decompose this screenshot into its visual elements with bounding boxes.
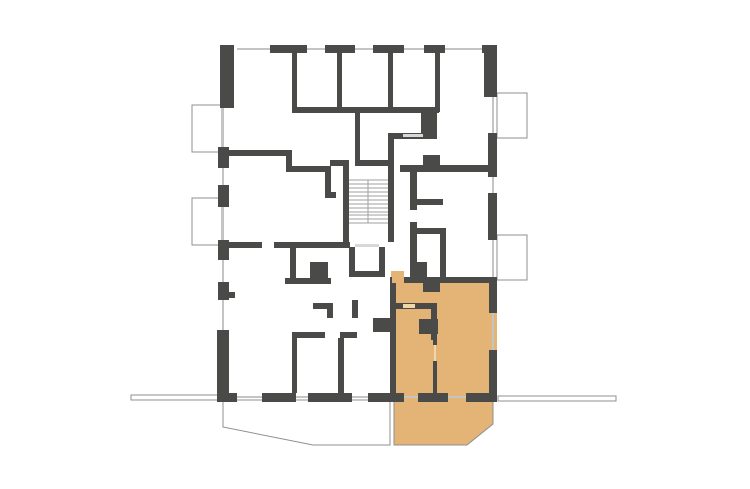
wall-unit-shaft — [419, 319, 438, 334]
wall-unit — [390, 277, 392, 283]
wall-interior — [292, 107, 439, 113]
highlighted-unit-fill[interactable] — [390, 277, 497, 402]
wall-interior — [292, 53, 297, 113]
window — [445, 48, 482, 50]
window — [404, 48, 424, 50]
window — [492, 97, 494, 133]
wall-corner-bl — [217, 330, 229, 402]
wall-interior — [352, 300, 358, 318]
wall-interior — [338, 338, 344, 393]
wall-stairwell — [330, 160, 343, 166]
wall-interior — [327, 303, 333, 318]
staircase-layer — [345, 180, 391, 223]
wall-bottom — [262, 393, 296, 402]
window — [352, 396, 368, 398]
wall-interior — [400, 165, 493, 172]
wall-unit — [433, 340, 437, 345]
wall-left — [218, 185, 229, 207]
window — [222, 108, 224, 147]
balcony-left-lower — [192, 198, 222, 245]
window — [296, 396, 308, 398]
wall-interior — [410, 172, 417, 210]
wall-bottom — [308, 393, 352, 402]
window — [222, 207, 224, 240]
wall-corner-tl — [220, 45, 234, 108]
floorplan-page — [0, 0, 750, 489]
wall-interior — [325, 192, 336, 198]
wall-shaft — [310, 262, 328, 284]
floorplan-svg — [0, 0, 750, 489]
window — [237, 396, 262, 398]
wall-shaft — [373, 318, 390, 332]
window — [222, 168, 224, 185]
door-opening-unit — [434, 345, 436, 361]
wall-bottom — [466, 393, 497, 402]
wall-interior — [435, 53, 440, 112]
balcony-right-upper — [497, 93, 527, 138]
wall-unit — [423, 277, 440, 292]
door-opening-unit — [403, 304, 415, 308]
ground-line-left — [131, 395, 222, 400]
window — [222, 300, 224, 330]
terrace-white — [223, 400, 390, 445]
highlighted-unit-entry[interactable] — [391, 271, 404, 281]
wall-bottom — [368, 393, 404, 402]
wall-shaft — [410, 262, 427, 277]
window — [307, 48, 325, 50]
wall-corner-tr — [484, 45, 497, 97]
wall-bottom — [217, 393, 237, 402]
ground-line-right — [498, 396, 616, 401]
wall-top — [325, 45, 355, 53]
window — [404, 396, 418, 398]
wall-stairwell — [343, 160, 349, 242]
window — [355, 48, 373, 50]
wall-stairwell — [388, 133, 394, 242]
wall-interior — [274, 242, 350, 248]
terrace-highlighted[interactable] — [394, 400, 493, 445]
window — [222, 260, 224, 282]
wall-interior — [417, 228, 443, 234]
wall-elevator — [349, 271, 385, 277]
window — [492, 240, 494, 277]
door-opening-elevator — [355, 244, 379, 247]
wall-interior — [292, 338, 297, 393]
wall-interior — [423, 155, 440, 165]
wall-interior — [355, 112, 360, 166]
wall-interior — [417, 199, 443, 205]
wall-unit — [433, 361, 437, 393]
window — [492, 177, 494, 193]
window — [237, 48, 270, 50]
wall-interior — [290, 166, 331, 172]
wall-interior — [228, 150, 288, 156]
wall-right — [488, 193, 497, 240]
wall-shaft — [421, 112, 437, 133]
wall-interior — [388, 53, 393, 112]
balcony-right-lower — [497, 235, 527, 280]
wall-interior — [292, 332, 325, 338]
wall-left — [218, 147, 229, 168]
wall-bottom — [418, 393, 448, 402]
door-opening — [403, 134, 423, 137]
wall-interior — [440, 228, 446, 277]
wall-interior — [340, 332, 357, 338]
wall-interior — [337, 53, 342, 112]
balcony-left-upper — [192, 105, 222, 152]
wall-interior — [228, 242, 262, 248]
highlighted-unit-layer — [390, 271, 497, 402]
wall-top — [424, 45, 445, 53]
wall-unit — [390, 283, 396, 393]
wall-top — [270, 45, 307, 53]
wall-unit — [404, 277, 497, 283]
wall-unit — [396, 303, 437, 309]
wall-left — [218, 240, 229, 260]
window — [448, 396, 466, 398]
wall-top — [373, 45, 404, 53]
terraces-layer — [223, 400, 493, 445]
window — [492, 313, 494, 350]
wall-interior — [218, 292, 235, 298]
